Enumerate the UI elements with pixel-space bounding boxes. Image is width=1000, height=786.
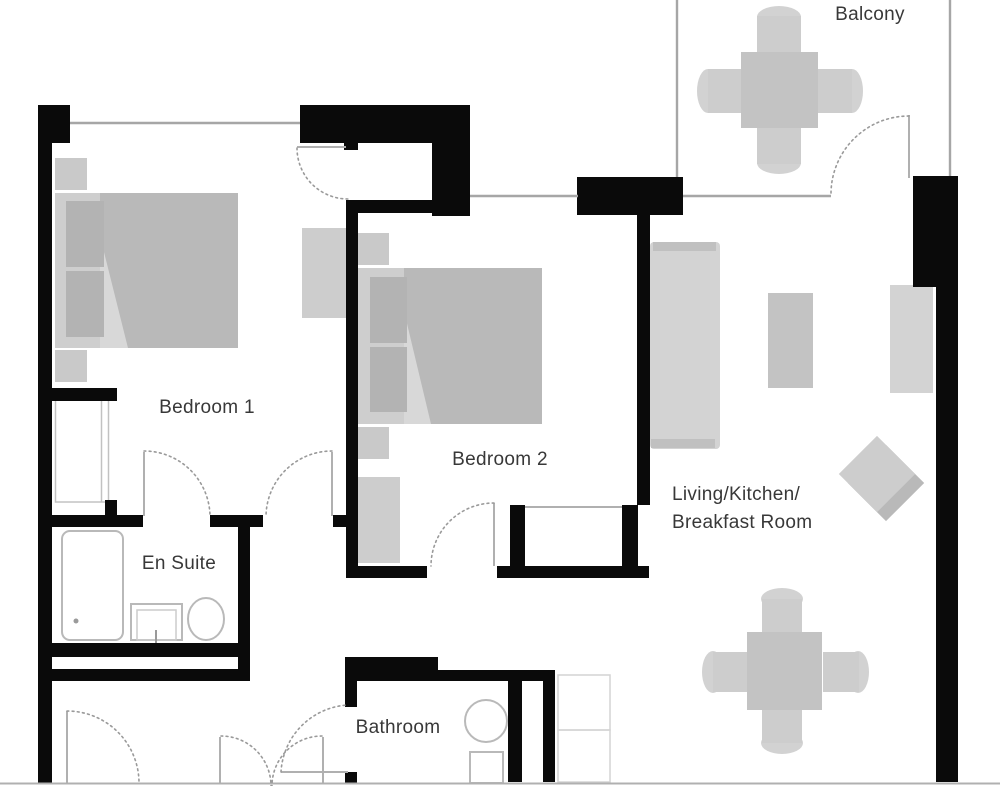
balcony-chair-top bbox=[757, 16, 801, 54]
bedroom2-pillow-top bbox=[370, 277, 407, 343]
wall-bedroom1-bottom-b bbox=[210, 515, 263, 527]
wall-right-exterior bbox=[936, 287, 958, 782]
coffee-table bbox=[768, 293, 813, 388]
wall-topleft-corner bbox=[38, 105, 70, 143]
door-arc-double-left bbox=[221, 736, 271, 786]
ensuite-toilet bbox=[188, 598, 224, 640]
bedroom1-pillow-bottom bbox=[66, 271, 104, 337]
room-label-bedroom1: Bedroom 1 bbox=[159, 397, 255, 418]
bathroom-toilet-bowl bbox=[465, 700, 507, 742]
bedroom2-dresser bbox=[358, 477, 400, 563]
door-arc-double-right bbox=[272, 736, 322, 786]
room-label-ensuite: En Suite bbox=[142, 553, 216, 574]
bedroom2-pillow-bottom bbox=[370, 347, 407, 412]
wall-left-exterior bbox=[38, 105, 52, 783]
floor-plan: Balcony Bedroom 1 Bedroom 2 En Suite Liv… bbox=[0, 0, 1000, 786]
wall-ensuite-bottom bbox=[38, 643, 250, 657]
sofa-body bbox=[650, 242, 720, 449]
room-label-bedroom2: Bedroom 2 bbox=[452, 449, 548, 470]
wall-ensuite-right bbox=[238, 523, 250, 681]
wall-bedroom1-bottom-c bbox=[333, 515, 353, 527]
door-arc-hall-left bbox=[67, 711, 139, 783]
floor-plan-canvas: Balcony Bedroom 1 Bedroom 2 En Suite Liv… bbox=[0, 0, 1000, 786]
wall-bathroom-left-stub bbox=[345, 772, 357, 783]
dining-chair-bottom bbox=[762, 708, 802, 743]
wall-bathroom-right-b bbox=[543, 670, 555, 782]
dining-table bbox=[747, 632, 822, 710]
wall-bathroom-right-a bbox=[508, 678, 522, 782]
bedroom1-nightstand-top bbox=[55, 158, 87, 190]
dining-set bbox=[702, 588, 869, 754]
wall-door-hinge-nub bbox=[344, 139, 358, 150]
bedroom1-closet bbox=[56, 398, 109, 502]
bathroom-appliance-top bbox=[558, 675, 610, 730]
door-arc-bathroom bbox=[281, 705, 348, 772]
balcony-table bbox=[741, 52, 818, 128]
bedroom1-nightstand-bottom bbox=[55, 350, 87, 382]
sofa-armrest-bottom bbox=[651, 439, 715, 448]
balcony-chair-right bbox=[817, 69, 852, 113]
room-label-living-line1: Living/Kitchen/ bbox=[672, 484, 800, 505]
room-label-living-line2: Breakfast Room bbox=[672, 512, 812, 533]
wall-bedroom1-bottom-a bbox=[52, 515, 143, 527]
dining-chair-left bbox=[713, 652, 749, 692]
bedroom1-pillow-top bbox=[66, 201, 104, 267]
sofa-armrest-top bbox=[653, 242, 716, 251]
wall-alcove-stub-right bbox=[622, 505, 638, 566]
wall-closet-nub bbox=[105, 500, 117, 515]
door-arc-balcony bbox=[831, 116, 909, 194]
balcony-chair-left bbox=[708, 69, 743, 113]
wall-hall-top bbox=[52, 669, 250, 681]
wall-top-block bbox=[300, 105, 470, 143]
wall-closet-top bbox=[38, 388, 117, 401]
door-arc-bedroom1-closet bbox=[297, 148, 348, 199]
wall-bathroom-top-a bbox=[345, 657, 438, 670]
wall-right-upper bbox=[913, 176, 958, 287]
wall-living-divider bbox=[637, 215, 650, 505]
dining-chair-top bbox=[762, 599, 802, 634]
wall-alcove-stub-left bbox=[510, 505, 525, 566]
wall-bathroom-top-b bbox=[357, 670, 553, 681]
wall-bedroom2-top bbox=[347, 200, 470, 213]
wall-living-top bbox=[577, 177, 683, 215]
bedroom2-nightstand-bottom bbox=[357, 427, 389, 459]
kitchen-counter bbox=[890, 285, 933, 393]
bedroom2-nightstand-top bbox=[357, 233, 389, 265]
bedroom1-wardrobe bbox=[302, 228, 346, 318]
wall-bedroom2-left bbox=[346, 200, 358, 566]
balcony-chair-bottom bbox=[757, 126, 801, 164]
ensuite-bathtub bbox=[62, 531, 123, 640]
bathroom-appliance-bottom bbox=[558, 730, 610, 782]
room-label-balcony: Balcony bbox=[835, 4, 905, 25]
room-label-bathroom: Bathroom bbox=[356, 717, 441, 738]
dining-chair-right bbox=[823, 652, 859, 692]
door-arc-bedroom1-entry bbox=[266, 451, 332, 517]
wall-bedroom2-bottom-left bbox=[346, 566, 427, 578]
balcony-set bbox=[697, 6, 863, 174]
ensuite-bathtub-drain bbox=[74, 619, 79, 624]
door-arc-bedroom2 bbox=[431, 503, 494, 566]
door-arc-ensuite bbox=[144, 451, 210, 517]
wall-bedroom2-bottom-right bbox=[497, 566, 649, 578]
bathroom-toilet-tank bbox=[470, 752, 503, 783]
